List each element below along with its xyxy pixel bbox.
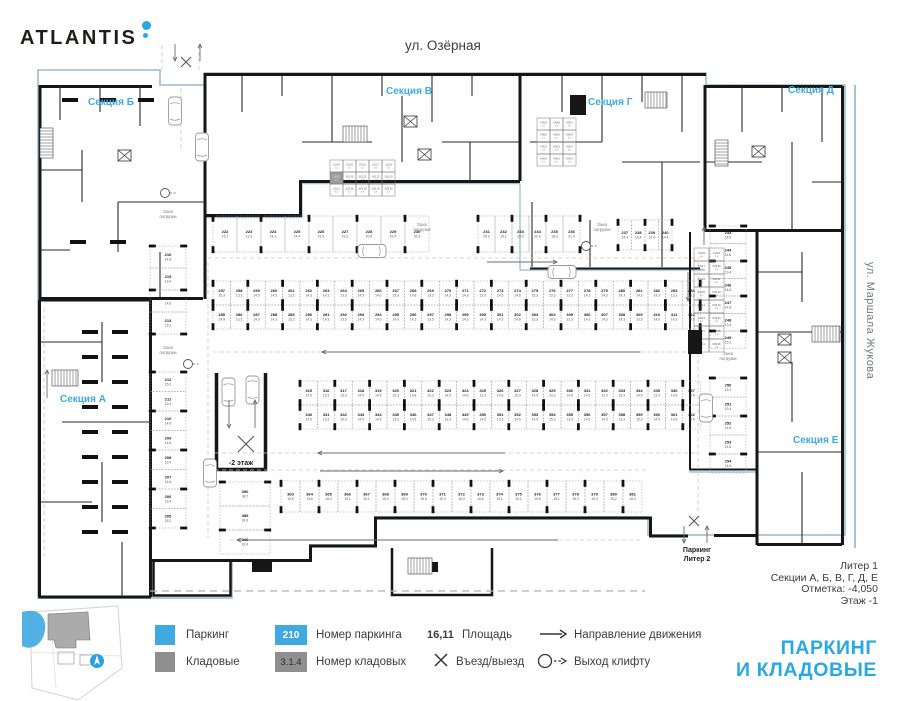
svg-text:284: 284 <box>688 288 695 293</box>
svg-text:4.7: 4.7 <box>568 161 572 163</box>
svg-text:364: 364 <box>306 492 313 497</box>
svg-text:14.5: 14.5 <box>305 418 312 422</box>
svg-text:15.1: 15.1 <box>553 497 560 501</box>
storage-cell: 4.04.23.7 <box>550 154 563 166</box>
legend-direction-label: Направление движения <box>574 629 701 641</box>
svg-text:3.8: 3.8 <box>361 191 365 193</box>
svg-text:14.5: 14.5 <box>445 394 452 398</box>
liter-line: Литер 1 <box>771 561 878 573</box>
svg-text:5.0: 5.0 <box>387 167 391 169</box>
parking-stall: 26314.3 <box>317 281 334 305</box>
svg-text:22.4: 22.4 <box>390 235 397 239</box>
svg-text:14.6: 14.6 <box>165 421 172 425</box>
svg-text:288: 288 <box>271 312 278 317</box>
svg-text:318: 318 <box>358 388 365 393</box>
parking-stall: 22215.1 <box>213 216 237 252</box>
logo-dot-small-icon <box>143 33 148 38</box>
svg-text:240: 240 <box>662 230 669 235</box>
parking-stall: 23914.4 <box>645 220 659 250</box>
svg-text:6.03.10: 6.03.10 <box>713 265 722 268</box>
svg-text:14.5: 14.5 <box>688 394 695 398</box>
svg-text:206: 206 <box>165 494 172 499</box>
svg-text:280: 280 <box>619 288 626 293</box>
svg-text:3.7: 3.7 <box>555 149 559 151</box>
legend-storage-label: Кладовые <box>186 656 240 668</box>
svg-text:322: 322 <box>427 388 434 393</box>
svg-text:14.5: 14.5 <box>532 394 539 398</box>
storage-cell: 4.05.75.0 <box>563 118 576 130</box>
parking-stall: 24314.6 <box>710 226 746 244</box>
svg-text:359: 359 <box>636 412 643 417</box>
storage-cell: 4.05.43.7 <box>563 130 576 142</box>
page-title: ПАРКИНГ И КЛАДОВЫЕ <box>736 637 877 681</box>
svg-text:3.6: 3.6 <box>715 334 719 336</box>
parking-stall: 23621.4 <box>563 216 580 252</box>
svg-text:14.3: 14.3 <box>671 318 678 322</box>
svg-text:3.01.2: 3.01.2 <box>333 176 340 179</box>
svg-text:13.3: 13.3 <box>549 394 556 398</box>
parking-stall: 35614.5 <box>578 405 595 429</box>
svg-text:14.5: 14.5 <box>584 394 591 398</box>
svg-text:205: 205 <box>165 513 172 518</box>
svg-text:14.5: 14.5 <box>636 394 643 398</box>
svg-text:14.5: 14.5 <box>375 394 382 398</box>
parking-stall: 31914.5 <box>370 381 387 405</box>
svg-text:14.5: 14.5 <box>358 394 365 398</box>
storage-cell: 3.01.64.1 <box>356 160 369 172</box>
storage-cell: 4.04.33.7 <box>537 154 550 166</box>
parking-stall: 27914.3 <box>596 281 613 305</box>
parking-stall-bands: 22215.122313.322414.122514.422621.922721… <box>212 215 702 513</box>
storage-cell: 6.03.54.2 <box>694 287 709 300</box>
svg-text:236: 236 <box>568 229 575 234</box>
svg-text:331: 331 <box>584 388 591 393</box>
parking-stall: 33213.3 <box>596 381 613 405</box>
svg-text:15.1: 15.1 <box>222 235 229 239</box>
svg-text:3.6: 3.6 <box>542 149 546 151</box>
svg-text:6.03.16: 6.03.16 <box>713 343 722 346</box>
svg-text:4.05.8: 4.05.8 <box>553 122 560 125</box>
parking-stall: 32314.5 <box>439 381 456 405</box>
svg-text:14.5: 14.5 <box>462 418 469 422</box>
parking-stall: 33014.5 <box>561 381 578 405</box>
storage-cell: 3.01.75.0 <box>369 160 382 172</box>
svg-text:233: 233 <box>517 229 524 234</box>
parking-stall: 32414.5 <box>457 381 474 405</box>
legend-parking-label: Паркинг <box>186 629 229 641</box>
svg-text:356: 356 <box>584 412 591 417</box>
legend-storage-number-label: Номер кладовых <box>316 656 406 668</box>
parking-stall: 21513.4 <box>150 268 186 290</box>
svg-text:243: 243 <box>725 230 732 235</box>
storage-cell: 4.05.14.5 <box>563 142 576 154</box>
svg-text:15.2: 15.2 <box>325 497 332 501</box>
svg-text:13.3: 13.3 <box>236 318 243 322</box>
svg-text:14.5: 14.5 <box>410 418 417 422</box>
parking-stall: 35314.5 <box>526 405 543 429</box>
parking-stall: 26715.3 <box>387 281 404 305</box>
svg-text:329: 329 <box>549 388 556 393</box>
parking-stall: 32213.3 <box>422 381 439 405</box>
svg-text:285: 285 <box>218 312 225 317</box>
svg-text:15.3: 15.3 <box>549 418 556 422</box>
svg-text:4.05.9: 4.05.9 <box>540 122 547 125</box>
svg-text:13.4: 13.4 <box>725 407 732 411</box>
svg-text:5.0: 5.0 <box>542 125 546 127</box>
parking-stall: 26814.8 <box>404 281 421 305</box>
svg-text:погрузки: погрузки <box>719 356 737 361</box>
car-icon <box>548 266 576 279</box>
svg-text:276: 276 <box>549 288 556 293</box>
svg-text:14.3: 14.3 <box>497 318 504 322</box>
svg-text:207: 207 <box>165 474 172 479</box>
svg-text:14.3: 14.3 <box>619 318 626 322</box>
svg-text:14.5: 14.5 <box>253 294 260 298</box>
svg-text:14.3: 14.3 <box>445 294 452 298</box>
parking-stall: 35813.3 <box>613 405 630 429</box>
svg-text:260: 260 <box>271 288 278 293</box>
svg-text:3.6: 3.6 <box>715 321 719 323</box>
svg-text:14.4: 14.4 <box>622 236 629 240</box>
svg-text:15.1: 15.1 <box>344 497 351 501</box>
svg-text:15.3: 15.3 <box>572 497 579 501</box>
storage-cell: 6.03.84.3 <box>694 248 709 261</box>
svg-text:277: 277 <box>566 288 573 293</box>
svg-text:14.4: 14.4 <box>649 236 656 240</box>
svg-text:13.3: 13.3 <box>566 294 573 298</box>
svg-text:14.3: 14.3 <box>601 294 608 298</box>
svg-text:3.6: 3.6 <box>715 308 719 310</box>
svg-text:306: 306 <box>584 312 591 317</box>
svg-text:216: 216 <box>165 252 172 257</box>
parking-stall: 27713.3 <box>561 281 578 305</box>
parking-stall: 29713.3 <box>422 305 439 329</box>
parking-stall: 36815.4 <box>376 481 395 512</box>
elevator-icon <box>778 334 791 345</box>
svg-text:14.5: 14.5 <box>688 418 695 422</box>
svg-text:315: 315 <box>305 388 312 393</box>
svg-text:214: 214 <box>165 296 172 301</box>
parking-stall: 38831.4 <box>220 530 270 554</box>
svg-text:258: 258 <box>236 288 243 293</box>
floor-plan-drawing: 22215.122313.322414.122514.422621.922721… <box>0 0 900 701</box>
svg-text:320: 320 <box>392 388 399 393</box>
stairs-icon <box>715 140 728 166</box>
svg-text:15.2: 15.2 <box>165 324 172 328</box>
svg-text:14.9: 14.9 <box>218 318 225 322</box>
svg-text:272: 272 <box>479 288 486 293</box>
parking-stall: 23814.4 <box>632 220 646 250</box>
elevator-icon <box>778 352 791 363</box>
svg-text:299: 299 <box>462 312 469 317</box>
legend-parking-swatch <box>155 625 175 645</box>
svg-text:14.3: 14.3 <box>584 318 591 322</box>
parking-stall: 29414.0 <box>370 305 387 329</box>
svg-text:265: 265 <box>358 288 365 293</box>
svg-text:15.1: 15.1 <box>363 497 370 501</box>
legend-storage-number-sample: 3.1.4 <box>275 652 307 672</box>
svg-text:226: 226 <box>318 229 325 234</box>
svg-text:345: 345 <box>392 412 399 417</box>
svg-text:4.05.4: 4.05.4 <box>566 134 573 137</box>
svg-text:344: 344 <box>375 412 382 417</box>
svg-text:340: 340 <box>305 412 312 417</box>
svg-text:13.3: 13.3 <box>340 394 347 398</box>
svg-text:330: 330 <box>566 388 573 393</box>
entry-exit-x-icon <box>238 436 254 452</box>
svg-text:369: 369 <box>401 492 408 497</box>
parking-stall: 37115.3 <box>433 481 452 512</box>
svg-text:14.6: 14.6 <box>725 253 732 257</box>
svg-text:14.3: 14.3 <box>636 294 643 298</box>
svg-text:263: 263 <box>323 288 330 293</box>
svg-text:271: 271 <box>462 288 469 293</box>
parking-stall: 21113.4 <box>150 392 186 412</box>
svg-text:14.3: 14.3 <box>323 294 330 298</box>
svg-text:14.3: 14.3 <box>271 318 278 322</box>
svg-text:253: 253 <box>725 440 732 445</box>
parking-stall: 34314.5 <box>352 405 369 429</box>
parking-stall: 20914.6 <box>150 431 186 451</box>
svg-text:3.01.13: 3.01.13 <box>385 176 394 179</box>
parking-stall: 32614.5 <box>491 381 508 405</box>
parking-stall: 31514.5 <box>300 381 317 405</box>
parking-stall: 38115.3 <box>623 481 642 512</box>
svg-text:373: 373 <box>477 492 484 497</box>
svg-text:332: 332 <box>601 388 608 393</box>
svg-text:6.03.12: 6.03.12 <box>713 291 722 294</box>
svg-text:13.3: 13.3 <box>246 235 253 239</box>
parking-stall: 30014.3 <box>474 305 491 329</box>
parking-stall: 26214.3 <box>300 281 317 305</box>
svg-text:3.01.4: 3.01.4 <box>333 164 340 167</box>
svg-text:296: 296 <box>410 312 417 317</box>
parking-stall: 30714.3 <box>596 305 613 329</box>
svg-text:311: 311 <box>671 312 678 317</box>
svg-text:282: 282 <box>653 288 660 293</box>
parking-stall: 35513.3 <box>561 405 578 429</box>
svg-text:208: 208 <box>165 455 172 460</box>
svg-text:379: 379 <box>591 492 598 497</box>
svg-text:19.1: 19.1 <box>500 235 507 239</box>
svg-text:13.3: 13.3 <box>323 418 330 422</box>
svg-text:4.05.6: 4.05.6 <box>540 134 547 137</box>
entry-exit-x-icon <box>689 516 699 526</box>
svg-text:4.05.7: 4.05.7 <box>566 122 573 125</box>
storage-cell: 3.01.15.4 <box>330 184 343 196</box>
parking-stall: 32814.5 <box>526 381 543 405</box>
svg-text:15.4: 15.4 <box>382 497 389 501</box>
svg-text:15.3: 15.3 <box>439 497 446 501</box>
svg-text:223: 223 <box>246 229 253 234</box>
svg-text:6.03.3: 6.03.3 <box>698 317 705 320</box>
svg-text:324: 324 <box>462 388 469 393</box>
parking-stall: 36014.5 <box>648 405 665 429</box>
svg-text:353: 353 <box>532 412 539 417</box>
parking-stall: 28014.3 <box>613 281 630 305</box>
svg-text:погрузки: погрузки <box>159 214 177 219</box>
svg-text:264: 264 <box>340 288 347 293</box>
legend-parking-number-label: Номер паркинга <box>316 629 402 641</box>
storage-cell: 4.04.14.7 <box>563 154 576 166</box>
section-label-a: Секция А <box>60 394 106 405</box>
parking-stall: 21614.6 <box>150 246 186 268</box>
svg-text:14.6: 14.6 <box>165 441 172 445</box>
svg-text:14.4: 14.4 <box>662 236 669 240</box>
svg-text:15.1: 15.1 <box>496 497 503 501</box>
parking-stall: 27814.3 <box>578 281 595 305</box>
direction-arrow <box>322 350 640 354</box>
svg-text:15.2: 15.2 <box>725 340 732 344</box>
svg-text:350: 350 <box>479 412 486 417</box>
svg-text:13.4: 13.4 <box>725 270 732 274</box>
svg-text:348: 348 <box>445 412 452 417</box>
parking-stall: 25314.6 <box>710 435 746 454</box>
svg-text:4.2: 4.2 <box>700 321 704 323</box>
storage-cell: 6.03.123.6 <box>709 287 724 300</box>
svg-text:6.03.14: 6.03.14 <box>713 317 722 320</box>
svg-text:14.6: 14.6 <box>725 305 732 309</box>
parking-stall: 31114.3 <box>665 305 682 329</box>
parking-stall: 26014.5 <box>265 281 282 305</box>
svg-text:погрузки: погрузки <box>593 227 611 232</box>
svg-text:365: 365 <box>325 492 332 497</box>
parking-stall: 31814.5 <box>352 381 369 405</box>
parking-stall: 37615.6 <box>528 481 547 512</box>
storage-cell: 3.01.153.8 <box>356 184 369 196</box>
parking-stall: 29914.3 <box>457 305 474 329</box>
parking-stall: 34215.3 <box>335 405 352 429</box>
svg-text:261: 261 <box>288 288 295 293</box>
parking-stall: 23518.3 <box>546 216 563 252</box>
parking-stall: 29213.3 <box>335 305 352 329</box>
storage-cell: 6.03.163.6 <box>709 339 724 352</box>
svg-text:14.5: 14.5 <box>497 394 504 398</box>
svg-text:25.2: 25.2 <box>483 235 490 239</box>
parking-stall: 23714.4 <box>618 220 632 250</box>
svg-text:270: 270 <box>445 288 452 293</box>
parking-stall: 33614.5 <box>665 381 682 405</box>
svg-text:274: 274 <box>514 288 521 293</box>
svg-text:14.3: 14.3 <box>584 294 591 298</box>
svg-text:13.4: 13.4 <box>165 499 172 503</box>
parking-stall: 34414.5 <box>370 405 387 429</box>
parking-stall: 35113.3 <box>491 405 508 429</box>
svg-text:15.3: 15.3 <box>458 497 465 501</box>
svg-text:15.3: 15.3 <box>636 418 643 422</box>
parking-stall: 20613.4 <box>150 489 186 509</box>
car-icon <box>196 133 209 161</box>
svg-text:257: 257 <box>218 288 225 293</box>
parking-stall: 27213.3 <box>474 281 491 305</box>
svg-text:14.6: 14.6 <box>725 445 732 449</box>
svg-text:6.03.4: 6.03.4 <box>698 304 705 307</box>
title-block: Литер 1 Секции А, Б, В, Г, Д, Е Отметка:… <box>771 561 878 607</box>
page-title-line1: ПАРКИНГ <box>736 637 877 659</box>
parking-stall: 33513.3 <box>648 381 665 405</box>
parking-stall: 22514.4 <box>285 216 309 252</box>
parking-stall: 32715.3 <box>509 381 526 405</box>
parking-stall: 37315.6 <box>471 481 490 512</box>
svg-text:268: 268 <box>410 288 417 293</box>
parking-stall: 30614.3 <box>578 305 595 329</box>
svg-text:14.3: 14.3 <box>305 294 312 298</box>
parking-stall: 36413.6 <box>300 481 319 512</box>
svg-text:32.3: 32.3 <box>414 235 421 239</box>
svg-text:4.04.2: 4.04.2 <box>553 158 560 161</box>
svg-text:378: 378 <box>572 492 579 497</box>
svg-text:327: 327 <box>514 388 521 393</box>
svg-text:14.0: 14.0 <box>375 294 382 298</box>
lift-exit-icon <box>536 652 570 670</box>
parking-stall: 30313.3 <box>526 305 543 329</box>
parking-stall: 20813.4 <box>150 450 186 470</box>
svg-text:20.0: 20.0 <box>534 235 541 239</box>
storage-cell: 3.01.143.8 <box>369 184 382 196</box>
svg-text:308: 308 <box>619 312 626 317</box>
page-title-line2: И КЛАДОВЫЕ <box>736 659 877 681</box>
svg-text:249: 249 <box>725 335 732 340</box>
svg-text:13.3: 13.3 <box>340 294 347 298</box>
parking-stall: 36315.6 <box>281 481 300 512</box>
svg-text:19.0: 19.0 <box>517 235 524 239</box>
svg-text:13.4: 13.4 <box>165 402 172 406</box>
svg-text:14.5: 14.5 <box>271 294 278 298</box>
parking-stall: 28714.3 <box>248 305 265 329</box>
svg-text:319: 319 <box>375 388 382 393</box>
parking-stall: 30214.9 <box>509 305 526 329</box>
svg-text:3.01.5: 3.01.5 <box>346 164 353 167</box>
svg-text:21.0: 21.0 <box>342 235 349 239</box>
svg-text:3.01.6: 3.01.6 <box>359 164 366 167</box>
svg-text:15.3: 15.3 <box>392 294 399 298</box>
svg-text:13.3: 13.3 <box>392 418 399 422</box>
svg-text:14.4: 14.4 <box>294 235 301 239</box>
svg-text:15.3: 15.3 <box>532 294 539 298</box>
svg-text:380: 380 <box>610 492 617 497</box>
parking-stall: 27414.5 <box>509 281 526 305</box>
svg-text:6.03.7: 6.03.7 <box>698 265 705 268</box>
svg-text:325: 325 <box>479 388 486 393</box>
svg-text:3.6: 3.6 <box>715 256 719 258</box>
svg-text:341: 341 <box>323 412 330 417</box>
svg-text:13.3: 13.3 <box>236 294 243 298</box>
svg-text:238: 238 <box>635 230 642 235</box>
svg-text:14.3: 14.3 <box>445 318 452 322</box>
lake-shape <box>22 611 45 648</box>
svg-text:13.3: 13.3 <box>532 318 539 322</box>
svg-text:Литер 2: Литер 2 <box>684 556 711 563</box>
svg-text:3.7: 3.7 <box>348 167 352 169</box>
svg-text:14.1: 14.1 <box>270 235 277 239</box>
svg-text:295: 295 <box>392 312 399 317</box>
svg-text:4.05.5: 4.05.5 <box>553 134 560 137</box>
svg-text:317: 317 <box>340 388 347 393</box>
parking-stall: 27515.3 <box>526 281 543 305</box>
atlantis-logo: ATLANTIS <box>20 27 137 50</box>
svg-text:14.3: 14.3 <box>653 318 660 322</box>
parking-stall: 38924.9 <box>220 506 270 530</box>
svg-text:275: 275 <box>532 288 539 293</box>
svg-text:15.2: 15.2 <box>725 388 732 392</box>
parking-stall: 34813.3 <box>439 405 456 429</box>
svg-text:14.5: 14.5 <box>532 418 539 422</box>
parking-stall: 22621.9 <box>309 216 333 252</box>
svg-text:297: 297 <box>427 312 434 317</box>
svg-text:343: 343 <box>358 412 365 417</box>
svg-text:6.03.15: 6.03.15 <box>713 330 722 333</box>
svg-text:307: 307 <box>601 312 608 317</box>
